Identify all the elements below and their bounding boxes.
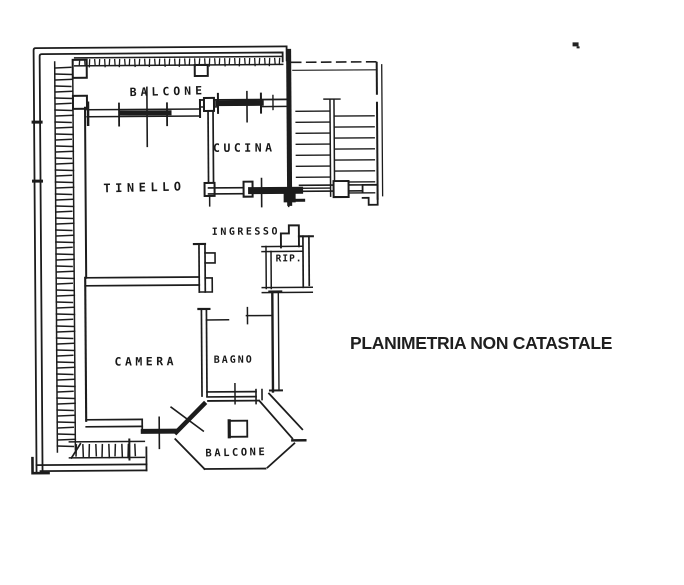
room-label-balcone-top: BALCONE	[129, 83, 206, 99]
staircase	[286, 51, 383, 206]
top-terrace-hatch	[75, 56, 283, 66]
left-terrace-hatch	[55, 61, 76, 452]
entrance-door-jamb	[281, 225, 299, 247]
scan-artifact	[573, 42, 580, 48]
room-label-cucina: CUCINA	[213, 140, 276, 154]
stair-steps-left	[296, 111, 330, 188]
floor-plan-drawing: BALCONE CUCINA TINELLO INGRESSO RIP. CAM…	[0, 0, 684, 585]
room-label-balcone-bottom: BALCONE	[205, 446, 267, 460]
bottom-terrace-ticks	[76, 444, 135, 457]
caption-planimetria: PLANIMETRIA NON CATASTALE	[350, 333, 610, 354]
room-label-rip: RIP.	[276, 253, 303, 264]
room-label-tinello: TINELLO	[103, 179, 185, 195]
service-duct	[246, 291, 282, 391]
room-label-bagno: BAGNO	[214, 355, 254, 366]
bedroom-walls	[85, 244, 216, 449]
scanned-floor-plan-page: { "plan": { "ink_color": "#1c1c1c", "roo…	[0, 0, 684, 585]
storage-closet	[262, 236, 313, 292]
left-terrace-ticks	[55, 67, 76, 446]
entrance-door-wall	[252, 178, 300, 206]
room-label-camera: CAMERA	[114, 354, 177, 368]
bottom-terrace-hatch	[69, 439, 144, 460]
room-label-ingresso: INGRESSO	[212, 226, 280, 237]
